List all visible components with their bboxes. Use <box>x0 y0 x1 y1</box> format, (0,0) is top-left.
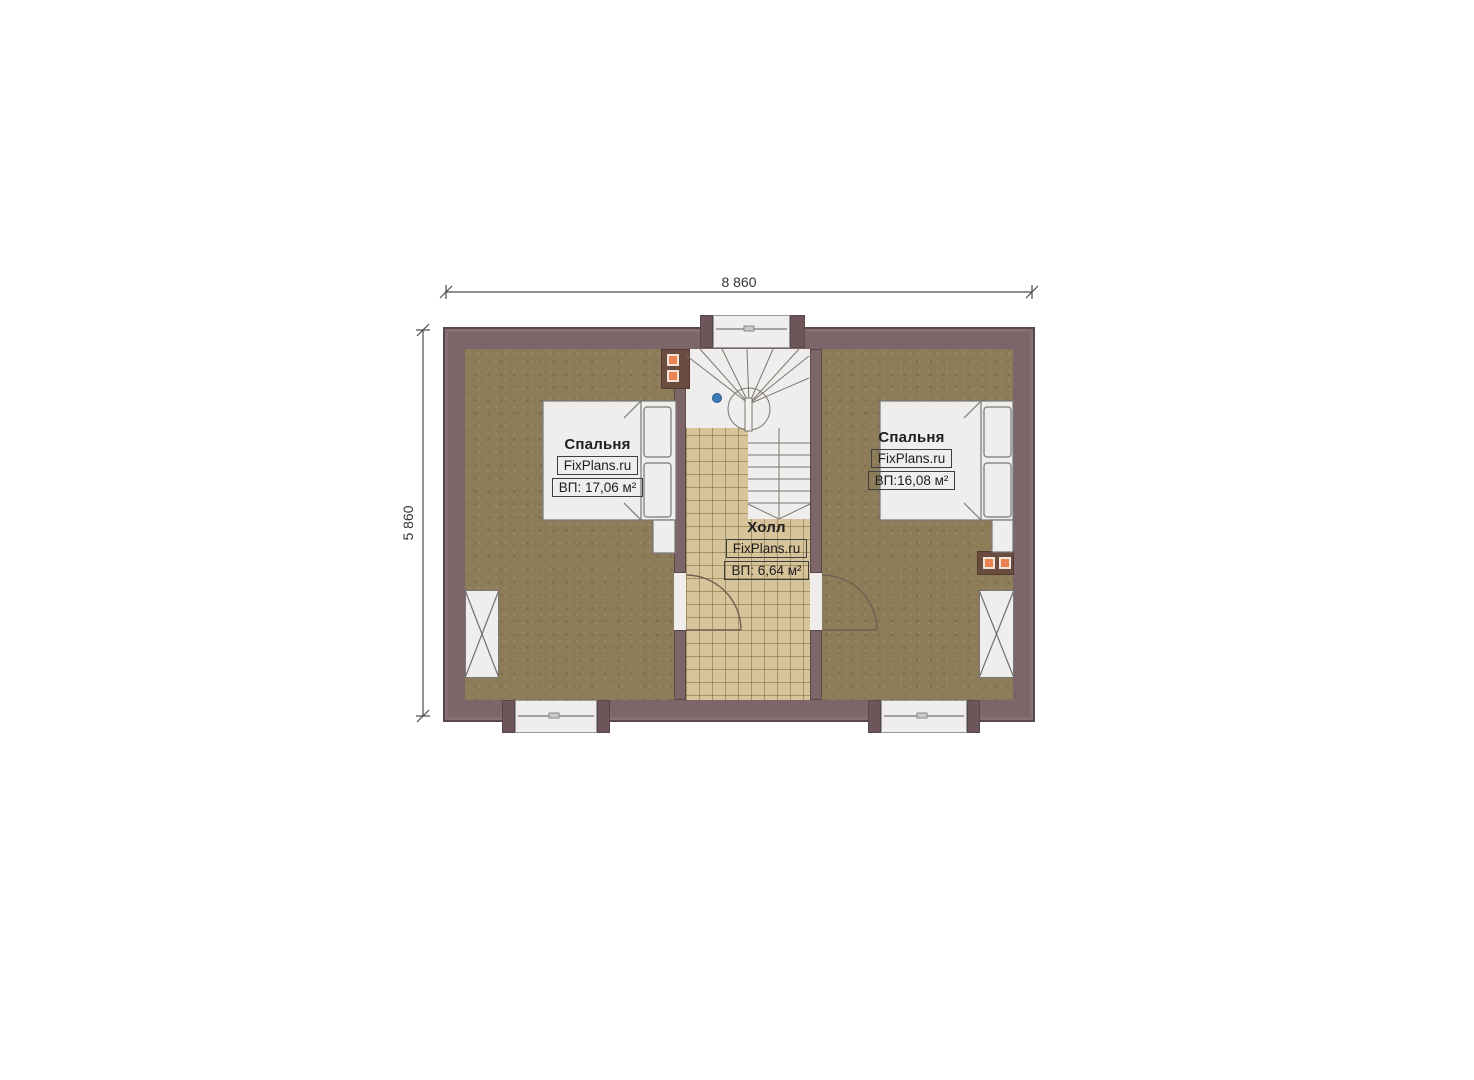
room-label-hall: Холл FixPlans.ru ВП: 6,64 м² <box>709 519 824 580</box>
window-pilaster <box>790 315 805 348</box>
door-opening-left-bedroom <box>674 573 686 630</box>
hall-left-wall-lower <box>674 630 686 700</box>
flue-vent-icon <box>999 557 1011 569</box>
brand-tag: FixPlans.ru <box>726 539 808 558</box>
flue-vent-icon <box>667 354 679 366</box>
room-name: Холл <box>747 519 785 536</box>
window-bottom-left <box>515 700 597 733</box>
window-top <box>713 315 790 348</box>
room-label-bedroom-right: Спальня FixPlans.ru ВП:16,08 м² <box>854 429 969 490</box>
brand-tag: FixPlans.ru <box>871 449 953 468</box>
floor-plan-canvas: Спальня FixPlans.ru ВП: 17,06 м² Спальня… <box>0 0 1474 1080</box>
window-pilaster <box>700 315 713 348</box>
dimension-label-height: 5 860 <box>400 493 420 553</box>
area-tag: ВП: 17,06 м² <box>552 478 644 497</box>
window-pilaster <box>967 700 980 733</box>
window-bottom-right <box>881 700 967 733</box>
stair-run <box>748 428 810 519</box>
stair-landing <box>686 349 810 428</box>
dimension-label-width: 8 860 <box>689 274 789 290</box>
brand-tag: FixPlans.ru <box>557 456 639 475</box>
hall-right-wall-lower <box>810 630 822 700</box>
wardrobe-right <box>979 590 1014 678</box>
wardrobe-left <box>465 590 499 678</box>
area-tag: ВП:16,08 м² <box>868 471 956 490</box>
room-label-bedroom-left: Спальня FixPlans.ru ВП: 17,06 м² <box>540 436 655 497</box>
flue-vent-icon <box>983 557 995 569</box>
room-name: Спальня <box>878 429 944 446</box>
flue-vent-icon <box>667 370 679 382</box>
chimney-block-right <box>977 551 1014 575</box>
area-tag: ВП: 6,64 м² <box>724 561 808 580</box>
window-pilaster <box>868 700 881 733</box>
chimney-block-left <box>661 349 690 389</box>
window-pilaster <box>502 700 515 733</box>
door-opening-right-bedroom <box>810 573 822 630</box>
window-pilaster <box>597 700 610 733</box>
room-name: Спальня <box>564 436 630 453</box>
